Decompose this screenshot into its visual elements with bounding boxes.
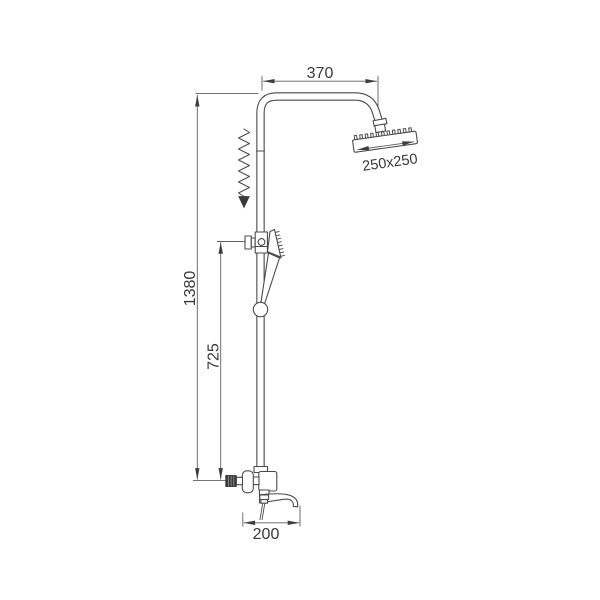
drawing-canvas: 370 1380 725 200 250x (0, 0, 600, 600)
adjustable-height-indicator (239, 129, 250, 208)
down-arrow-icon (239, 197, 249, 208)
dimension-handshower-height: 725 (206, 242, 248, 480)
holder-ring (258, 239, 265, 246)
mixer-faucet (226, 467, 298, 520)
pipe-outline (261, 97, 381, 468)
shower-head-group: 250x250 (352, 127, 421, 176)
hose-nut-lower (261, 500, 268, 504)
dimension-spout-length: 200 (243, 506, 300, 544)
dim-arm-width-label: 370 (307, 65, 334, 82)
dim-spout-length-label: 200 (253, 526, 280, 543)
mixer-body (259, 472, 277, 492)
shower-set-technical-drawing: 370 1380 725 200 250x (0, 0, 600, 600)
pipe-fill (261, 97, 381, 468)
dim-total-height-label: 1380 (182, 271, 199, 307)
head-size-label: 250x250 (361, 151, 418, 175)
handle-connector (236, 477, 242, 484)
hand-shower-holder (245, 232, 267, 253)
hose-nut-upper (260, 495, 269, 500)
wall-flange (242, 471, 253, 493)
dimension-arm-width: 370 (262, 65, 378, 109)
holder-knob (245, 236, 251, 249)
overhead-shower: 250x250 (352, 118, 421, 175)
zigzag-spring-line (239, 129, 250, 197)
dim-handshower-height-label: 725 (206, 343, 223, 370)
slider-ball (253, 302, 267, 316)
hand-shower-hose (260, 503, 265, 519)
shower-column-and-arm (257, 97, 381, 468)
